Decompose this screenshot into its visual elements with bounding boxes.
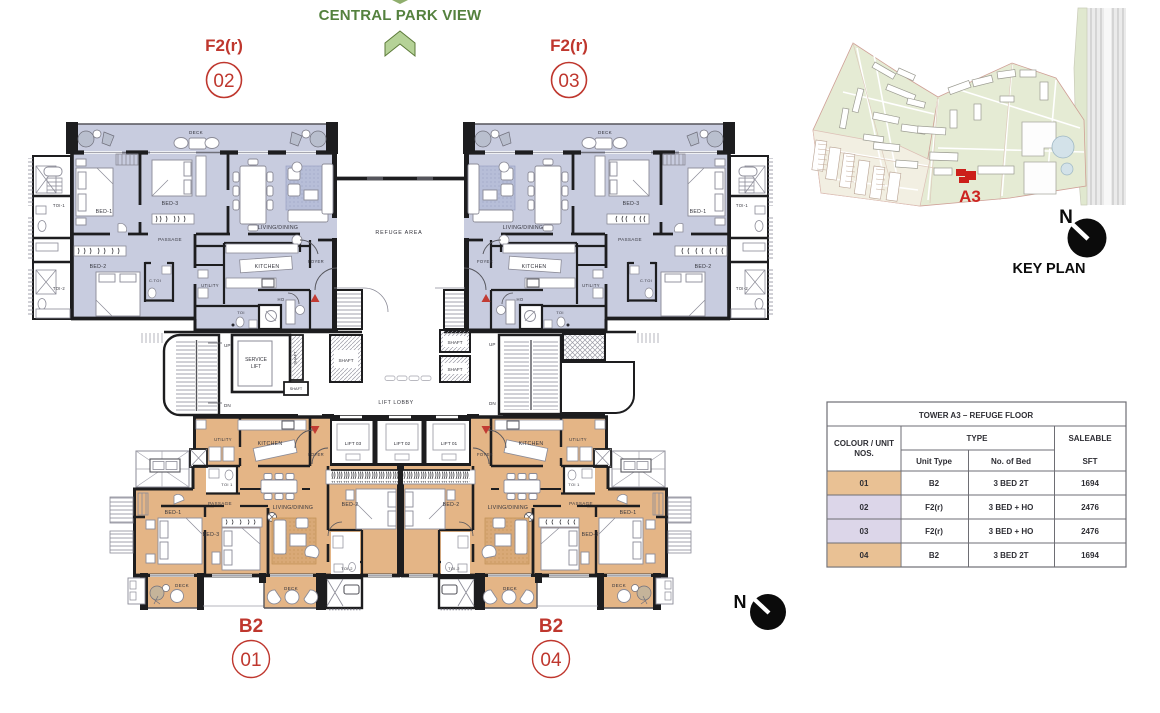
svg-text:FOYER: FOYER (477, 259, 493, 264)
svg-text:PASSAGE: PASSAGE (618, 237, 642, 242)
svg-text:UTILITY: UTILITY (582, 283, 600, 288)
svg-text:F2(r): F2(r) (550, 36, 588, 55)
svg-text:KITCHEN: KITCHEN (522, 264, 547, 270)
svg-text:BED-3: BED-3 (582, 532, 599, 538)
svg-text:PASSAGE: PASSAGE (569, 501, 593, 506)
svg-text:COLOUR / UNIT: COLOUR / UNIT (834, 439, 894, 448)
svg-text:SHAFT: SHAFT (447, 340, 462, 345)
svg-text:UTILITY: UTILITY (569, 437, 587, 442)
svg-text:TOI-2: TOI-2 (341, 566, 353, 571)
svg-text:DECK: DECK (598, 130, 613, 135)
svg-text:SHAFT: SHAFT (338, 358, 353, 363)
svg-text:REFUGE AREA: REFUGE AREA (375, 230, 422, 236)
svg-text:03: 03 (860, 527, 869, 536)
svg-text:01: 01 (860, 479, 869, 488)
svg-text:BED-1: BED-1 (690, 209, 707, 215)
svg-text:TOI-2: TOI-2 (448, 566, 460, 571)
svg-text:TYPE: TYPE (967, 434, 989, 443)
svg-text:SFT: SFT (1082, 457, 1097, 466)
svg-text:N: N (734, 592, 747, 612)
svg-text:SHAFT: SHAFT (290, 387, 303, 391)
svg-text:BED-2: BED-2 (443, 502, 460, 508)
svg-text:BED-1: BED-1 (620, 510, 637, 516)
svg-text:3 BED 2T: 3 BED 2T (993, 479, 1028, 488)
svg-text:LIVING/DINING: LIVING/DINING (258, 225, 299, 231)
svg-text:DN: DN (224, 403, 231, 408)
svg-text:FOYER: FOYER (308, 452, 324, 457)
svg-text:LIFT 03: LIFT 03 (345, 441, 362, 447)
svg-text:DECK: DECK (503, 586, 518, 591)
svg-text:04: 04 (860, 551, 869, 560)
svg-text:TOWER A3 – REFUGE FLOOR: TOWER A3 – REFUGE FLOOR (919, 411, 1033, 420)
svg-text:KITCHEN: KITCHEN (255, 264, 280, 270)
svg-text:BED-2: BED-2 (695, 264, 712, 270)
svg-text:DECK: DECK (175, 583, 190, 588)
svg-text:B2: B2 (539, 616, 563, 637)
svg-text:3 BED 2T: 3 BED 2T (993, 551, 1028, 560)
svg-text:TOI-2: TOI-2 (736, 286, 748, 291)
svg-text:UTILITY: UTILITY (214, 437, 232, 442)
svg-text:LIFT 02: LIFT 02 (394, 441, 411, 447)
svg-text:NOS.: NOS. (854, 449, 874, 458)
svg-text:04: 04 (540, 650, 562, 671)
svg-text:LIVING/DINING: LIVING/DINING (273, 505, 314, 511)
svg-text:TOI 1: TOI 1 (221, 482, 233, 487)
svg-text:C.TOI: C.TOI (640, 278, 652, 283)
svg-text:PASSAGE: PASSAGE (208, 501, 232, 506)
svg-text:SHAFT: SHAFT (447, 367, 462, 372)
svg-text:BED-3: BED-3 (623, 201, 640, 207)
svg-text:BED-3: BED-3 (203, 532, 220, 538)
svg-text:02: 02 (213, 71, 234, 92)
svg-text:03: 03 (558, 71, 579, 92)
svg-text:BED-3: BED-3 (162, 201, 179, 207)
svg-text:FOYER: FOYER (477, 452, 493, 457)
svg-text:02: 02 (860, 503, 869, 512)
svg-text:Unit Type: Unit Type (916, 457, 952, 466)
svg-text:LIFT LOBBY: LIFT LOBBY (378, 400, 413, 406)
svg-text:CENTRAL PARK VIEW: CENTRAL PARK VIEW (319, 7, 482, 24)
svg-text:LIFT: LIFT (251, 364, 261, 370)
svg-text:No. of Bed: No. of Bed (991, 457, 1031, 466)
svg-text:TOI-1: TOI-1 (736, 203, 748, 208)
svg-text:UP: UP (224, 343, 230, 348)
svg-text:SALEABLE: SALEABLE (1068, 434, 1112, 443)
svg-text:C.TOI: C.TOI (149, 278, 161, 283)
svg-text:LIVING/DINING: LIVING/DINING (503, 225, 544, 231)
svg-text:HO: HO (517, 297, 524, 302)
svg-text:TOI-1: TOI-1 (53, 203, 65, 208)
svg-text:BED-1: BED-1 (165, 510, 182, 516)
svg-text:UTILITY: UTILITY (201, 283, 219, 288)
svg-text:TOI: TOI (237, 310, 245, 315)
svg-text:KITCHEN: KITCHEN (519, 441, 544, 447)
svg-text:LIVING/DINING: LIVING/DINING (488, 505, 529, 511)
svg-text:UP: UP (489, 342, 495, 347)
svg-text:PASSAGE: PASSAGE (158, 237, 182, 242)
svg-text:SHAFT: SHAFT (293, 351, 298, 365)
svg-text:KITCHEN: KITCHEN (258, 441, 283, 447)
svg-text:N: N (1059, 207, 1073, 228)
svg-text:TOI-2: TOI-2 (53, 286, 65, 291)
svg-text:1694: 1694 (1081, 551, 1099, 560)
svg-text:2476: 2476 (1081, 527, 1099, 536)
svg-text:DECK: DECK (284, 586, 299, 591)
svg-text:HO: HO (278, 297, 285, 302)
svg-text:SERVICE: SERVICE (245, 357, 268, 363)
svg-text:B2: B2 (929, 479, 940, 488)
svg-text:3 BED + HO: 3 BED + HO (989, 503, 1034, 512)
svg-text:F2(r): F2(r) (925, 503, 943, 512)
svg-text:F2(r): F2(r) (925, 527, 943, 536)
svg-text:BED-1: BED-1 (96, 209, 113, 215)
svg-text:DECK: DECK (612, 583, 627, 588)
svg-text:KEY PLAN: KEY PLAN (1012, 261, 1085, 277)
svg-text:DN: DN (489, 401, 496, 406)
svg-text:BED-2: BED-2 (342, 502, 359, 508)
svg-text:FOYER: FOYER (308, 259, 324, 264)
svg-text:2476: 2476 (1081, 503, 1099, 512)
svg-text:TOI: TOI (556, 310, 564, 315)
svg-text:B2: B2 (929, 551, 940, 560)
svg-text:3 BED + HO: 3 BED + HO (989, 527, 1034, 536)
svg-text:LIFT 01: LIFT 01 (441, 441, 458, 447)
svg-text:DECK: DECK (189, 130, 204, 135)
svg-text:TOI 1: TOI 1 (568, 482, 580, 487)
svg-text:BED-2: BED-2 (90, 264, 107, 270)
svg-text:F2(r): F2(r) (205, 36, 243, 55)
svg-text:01: 01 (240, 650, 261, 671)
svg-text:A3: A3 (959, 187, 981, 206)
svg-text:1694: 1694 (1081, 479, 1099, 488)
svg-text:B2: B2 (239, 616, 263, 637)
